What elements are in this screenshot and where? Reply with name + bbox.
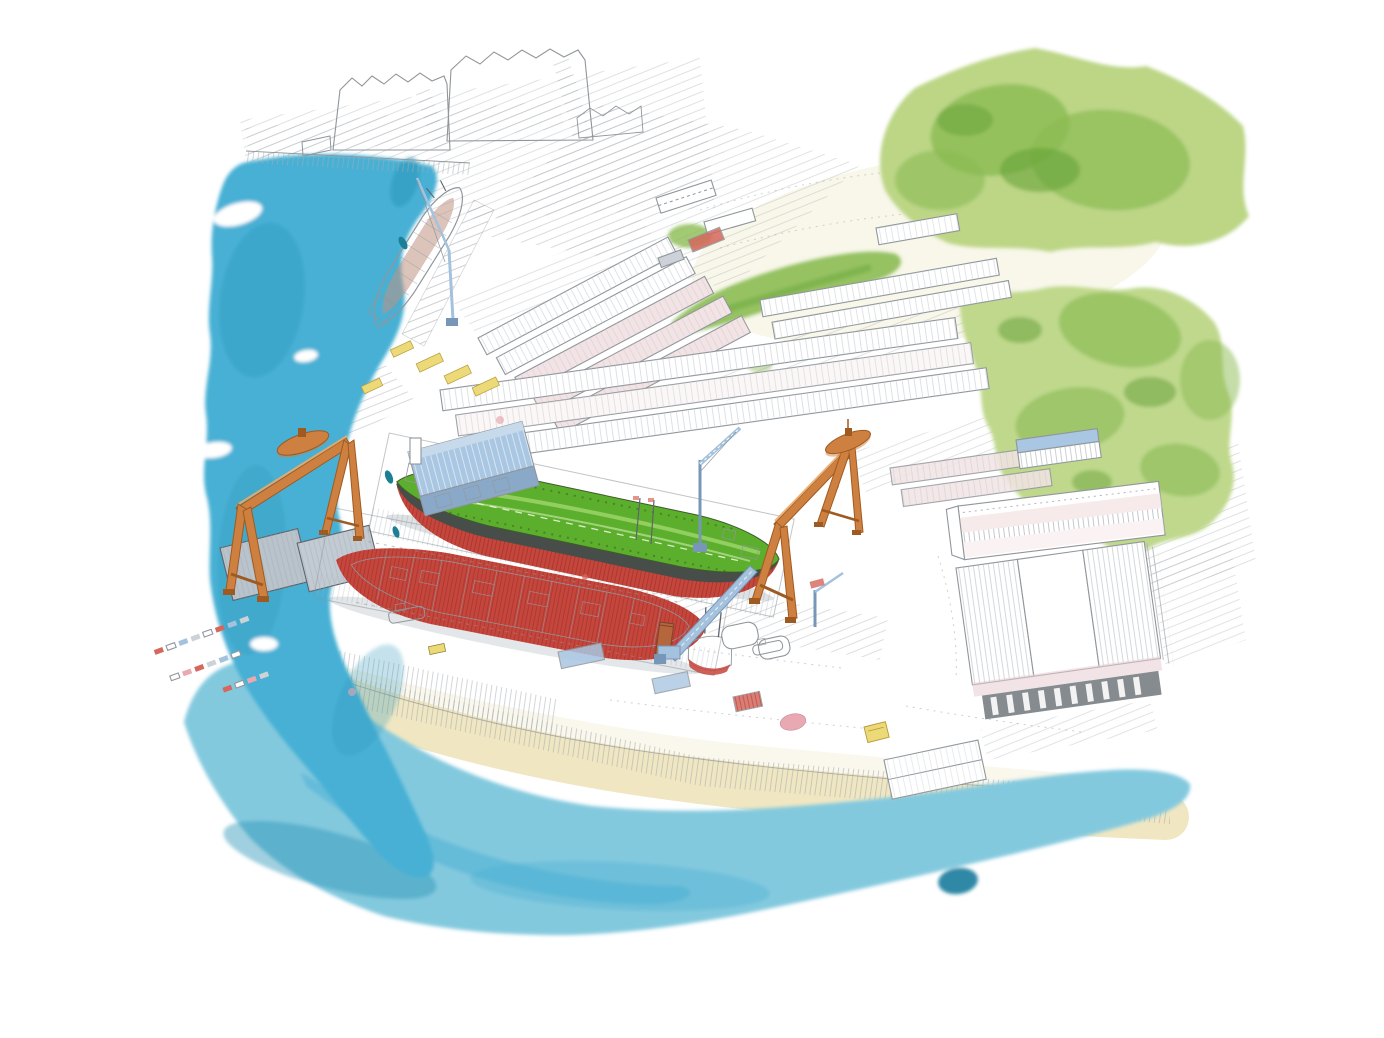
pink-marker	[348, 688, 356, 696]
crane-cab	[654, 654, 666, 664]
dock-tower	[410, 438, 421, 464]
shipyard-illustration	[0, 0, 1384, 1038]
cap-stub	[845, 428, 852, 436]
crane-foot	[257, 596, 269, 602]
mast-flag	[633, 496, 639, 500]
crane-foot	[785, 617, 796, 623]
tree-canopy-dark	[1124, 377, 1176, 407]
crane-base	[446, 318, 458, 326]
red-marker	[582, 574, 588, 580]
crane-foot	[353, 536, 362, 541]
mast-flag	[648, 498, 654, 502]
crane-foot	[749, 598, 760, 604]
tree-canopy-dark	[998, 317, 1042, 343]
shipyard-illustration-canvas	[0, 0, 1384, 1038]
gable-warehouse	[956, 540, 1177, 721]
crane-foot	[814, 522, 823, 527]
crane-foot	[223, 589, 235, 595]
water-highlight	[250, 637, 278, 651]
tree-canopy-dark	[937, 104, 993, 136]
crane-foot	[319, 530, 328, 535]
crane-base	[693, 543, 707, 552]
cap-stub	[298, 428, 306, 437]
crane-foot	[852, 530, 861, 535]
tree-canopy-mid	[1180, 340, 1240, 420]
tree-canopy-mid	[895, 150, 985, 210]
pink-marker	[496, 416, 504, 424]
tree-canopy-dark	[1000, 148, 1080, 192]
